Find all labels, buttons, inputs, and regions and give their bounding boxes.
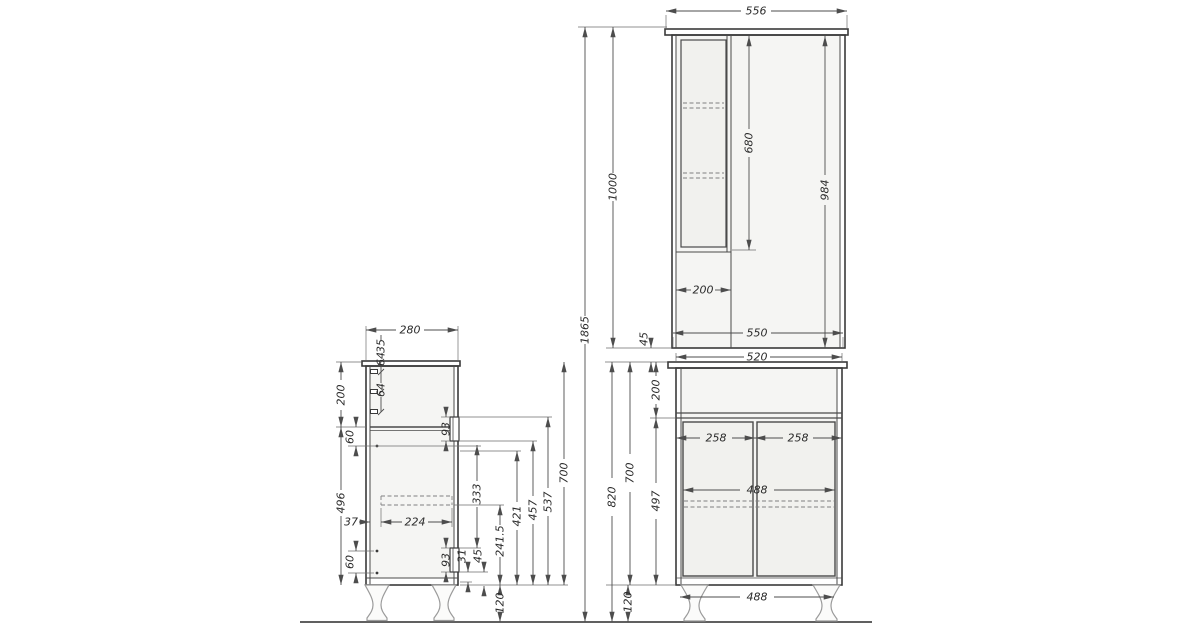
dim-label-lower-drawer-section: 200 xyxy=(650,380,663,401)
overall-dimension-chain: 1865 1000 45 820 700 120 xyxy=(578,27,675,622)
dim-label-wall-gap: 45 xyxy=(638,332,651,346)
lower-leg-left xyxy=(681,585,708,621)
dim-label-side-hinge-offset: 35 xyxy=(375,339,388,353)
side-leg-left xyxy=(365,585,389,621)
upper-top-board xyxy=(665,29,848,35)
dim-label-upper-height: 1000 xyxy=(607,173,620,201)
dim-label-side-height-d: 537 xyxy=(542,492,555,513)
dim-label-total-height: 1865 xyxy=(579,316,592,344)
dim-label-lower-total-height: 820 xyxy=(606,487,619,508)
dim-label-side-door-handle: 93 xyxy=(440,553,453,567)
side-view: 280 35 64 64 200 60 496 60 37 224 xyxy=(335,324,571,623)
upper-cabinet-front-view: 556 680 984 200 550 xyxy=(665,5,848,349)
dim-label-side-below-drawer: 60 xyxy=(344,430,357,444)
dim-label-side-leg-height: 120 xyxy=(494,593,507,614)
dim-label-side-hinge-gap-upper: 64 xyxy=(375,352,388,366)
dim-label-upper-door-height: 680 xyxy=(743,133,756,154)
dim-label-side-handle-bottom-offset: 31 xyxy=(456,549,469,563)
technical-drawing: 280 35 64 64 200 60 496 60 37 224 xyxy=(0,0,1200,630)
dim-label-lower-right-door-width: 258 xyxy=(788,432,809,445)
dim-label-side-height-b: 421 xyxy=(511,506,524,527)
dim-label-upper-bottom-width: 550 xyxy=(747,327,768,340)
dim-label-upper-body-height: 984 xyxy=(819,180,832,201)
dim-label-leg-height: 120 xyxy=(622,592,635,613)
dim-label-side-drawer-handle: 93 xyxy=(440,422,453,436)
dim-label-lower-inner-width: 488 xyxy=(747,484,768,497)
furniture-technical-drawing-page: 280 35 64 64 200 60 496 60 37 224 xyxy=(0,0,1200,630)
dim-label-side-height-a: 333 xyxy=(471,484,484,505)
dim-label-side-depth: 280 xyxy=(400,324,421,337)
dim-label-lower-left-door-width: 258 xyxy=(706,432,727,445)
dim-label-side-height-c: 457 xyxy=(527,500,540,521)
dim-label-lower-door-section: 497 xyxy=(650,491,663,512)
dim-label-lower-leg-span: 488 xyxy=(747,591,768,604)
dim-label-side-handle-clearance: 45 xyxy=(472,549,485,563)
lower-cabinet-front-view: 520 200 497 258 258 488 488 xyxy=(650,351,848,622)
dim-label-side-shelf-gap: 37 xyxy=(344,516,358,529)
dim-label-side-drawer-section: 200 xyxy=(335,385,348,406)
dim-label-lower-body-height: 700 xyxy=(624,463,637,484)
dim-label-upper-top-width: 556 xyxy=(746,5,767,18)
dim-label-side-shelf-depth: 224 xyxy=(405,516,426,529)
lower-leg-right xyxy=(813,585,840,621)
dim-label-side-body-height: 700 xyxy=(558,463,571,484)
dim-label-side-hinge-gap-lower: 64 xyxy=(375,383,388,397)
dim-label-side-above-bottom: 60 xyxy=(344,555,357,569)
side-leg-right xyxy=(432,585,456,621)
dim-label-side-door-section: 496 xyxy=(335,493,348,514)
dim-label-side-shelf-height: 241.5 xyxy=(494,525,507,557)
dim-label-upper-shelf-width: 200 xyxy=(693,284,714,297)
dim-label-lower-top-width: 520 xyxy=(747,351,768,364)
